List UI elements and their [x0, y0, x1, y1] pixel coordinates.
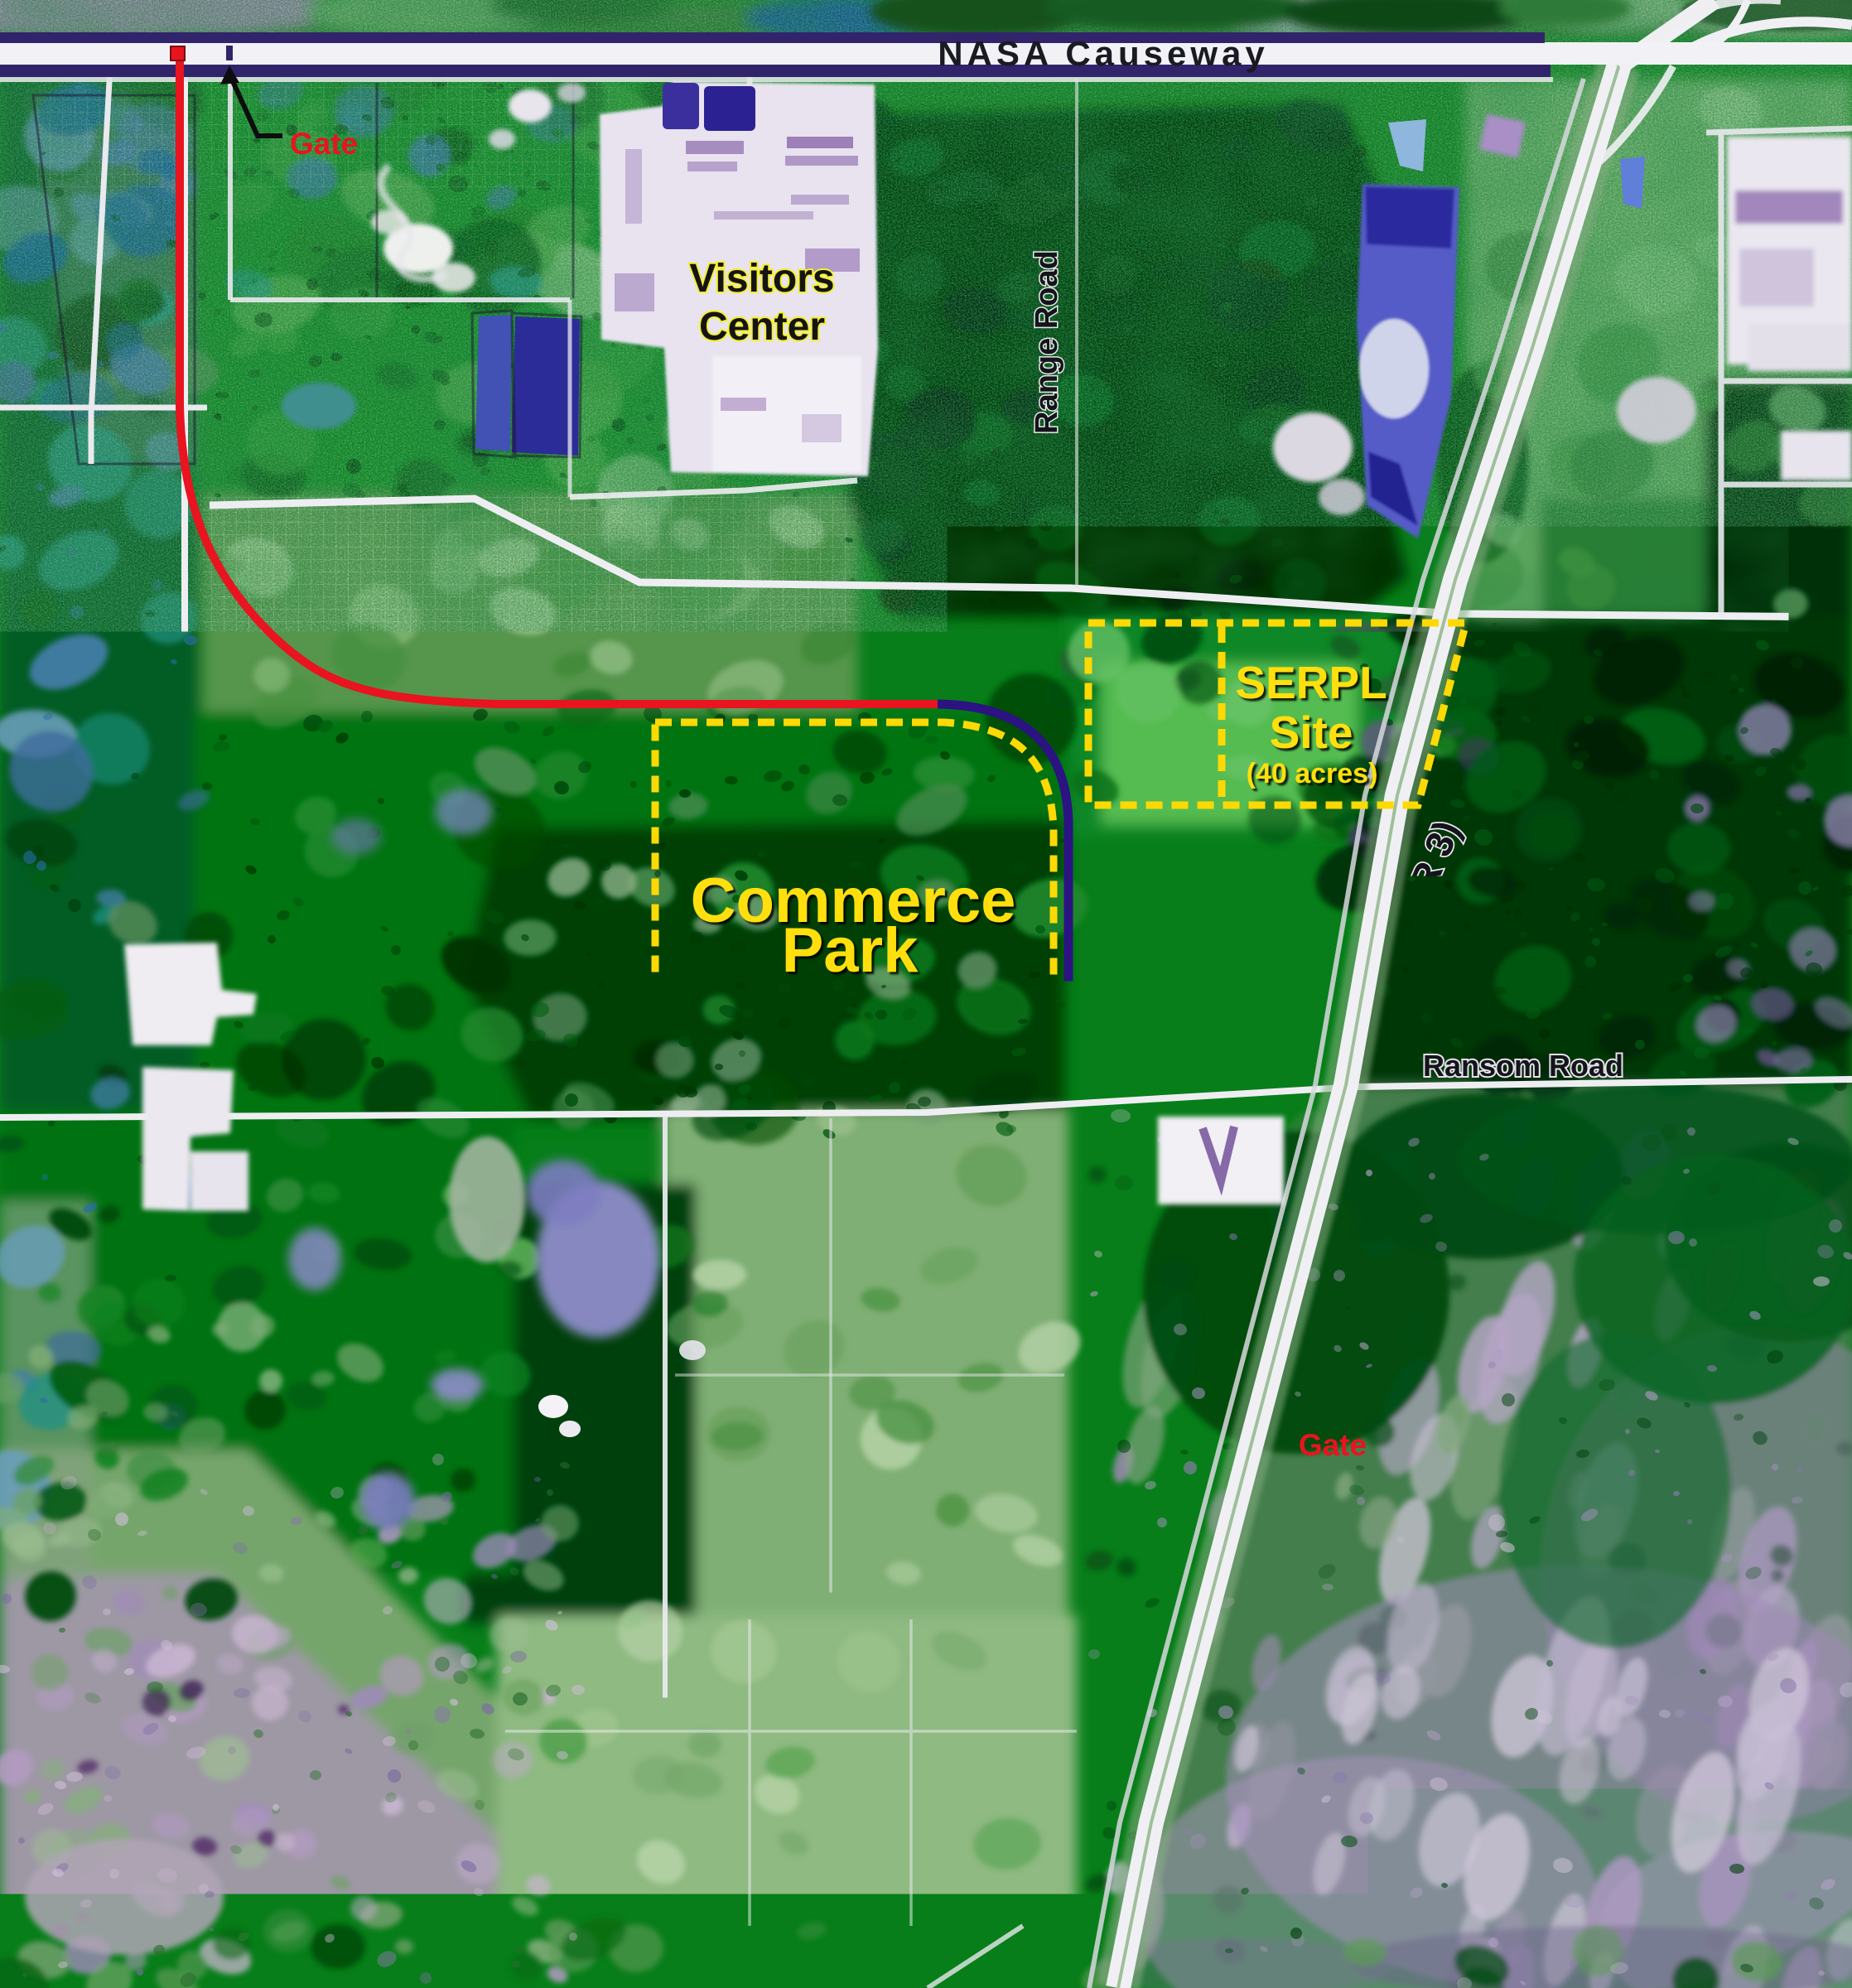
svg-text:NASA Causeway: NASA Causeway — [938, 34, 1269, 73]
svg-text:Park: Park — [782, 915, 919, 986]
svg-text:Site: Site — [1270, 707, 1353, 758]
svg-text:(400 acres): (400 acres) — [760, 1001, 950, 1042]
svg-text:SERPL: SERPL — [1235, 657, 1387, 708]
svg-text:Gate: Gate — [290, 127, 358, 161]
svg-text:Range Road: Range Road — [1030, 250, 1064, 434]
svg-text:Gate: Gate — [1299, 1428, 1367, 1462]
svg-text:Visitors: Visitors — [689, 257, 834, 301]
svg-text:Ransom Road: Ransom Road — [1423, 1049, 1623, 1083]
svg-text:Center: Center — [699, 305, 825, 349]
svg-text:(40 acres): (40 acres) — [1247, 758, 1378, 789]
